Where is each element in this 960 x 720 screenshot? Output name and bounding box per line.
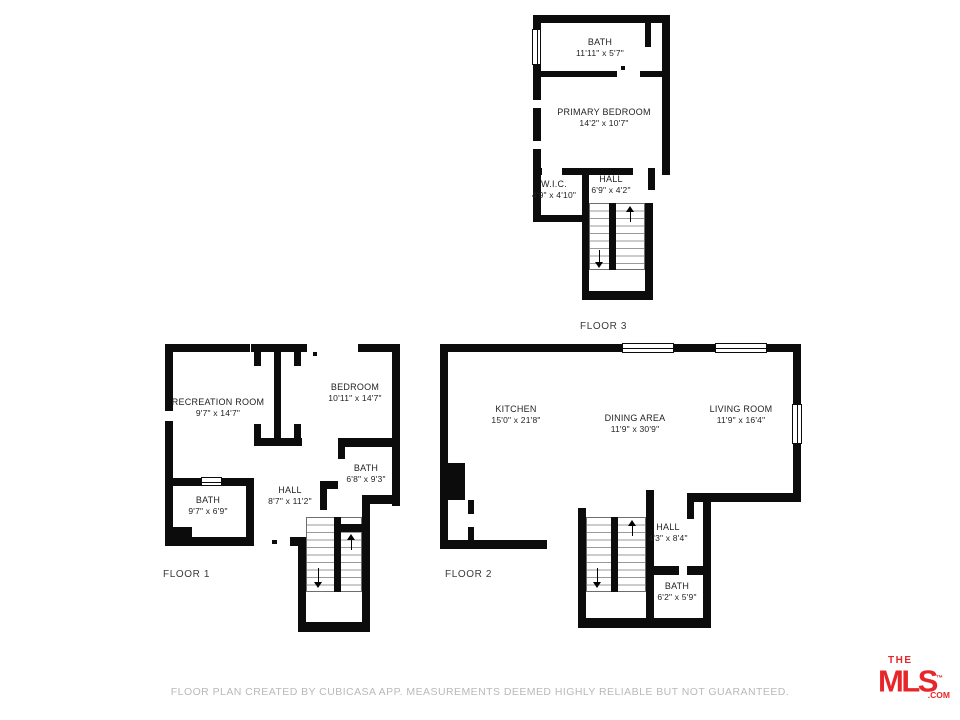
fireplace-block <box>166 527 192 541</box>
room-dims: 14'2" x 10'7" <box>534 118 674 128</box>
wall <box>468 500 474 514</box>
wall <box>533 15 670 23</box>
stairs-landing-wall <box>341 524 362 532</box>
room-name: W.I.C. <box>522 179 586 190</box>
room-name: LIVING ROOM <box>676 404 806 415</box>
wall <box>173 478 201 486</box>
disclaimer-text: FLOOR PLAN CREATED BY CUBICASA APP. MEAS… <box>0 686 960 698</box>
wall <box>298 537 306 632</box>
room-dims: 15'0" x 21'8" <box>451 415 581 425</box>
room-name: BEDROOM <box>300 382 410 393</box>
room-dims: 9'7" x 6'9" <box>163 506 253 516</box>
room-dims: 8'7" x 11'2" <box>245 496 335 506</box>
room-label-primary-bedroom: PRIMARY BEDROOM 14'2" x 10'7" <box>534 107 674 128</box>
stairs-down-arrow-icon <box>593 568 601 588</box>
stairs-down-arrow-icon <box>595 250 603 268</box>
room-dims: 4'9" x 4'10" <box>522 190 586 200</box>
wall <box>645 203 653 300</box>
wall <box>274 352 281 440</box>
room-label-bedroom: BEDROOM 10'11" x 14'7" <box>300 382 410 403</box>
wall <box>646 490 654 628</box>
room-label-wic: W.I.C. 4'9" x 4'10" <box>522 179 586 200</box>
wall <box>582 291 653 300</box>
room-dims: 11'9" x 16'4" <box>676 415 806 425</box>
room-name: KITCHEN <box>451 404 581 415</box>
door-tick <box>526 540 531 544</box>
wall <box>578 618 711 628</box>
room-label-living-room: LIVING ROOM 11'9" x 16'4" <box>676 404 806 425</box>
wall <box>294 352 301 366</box>
fireplace-block <box>448 463 465 500</box>
room-name: HALL <box>579 174 643 185</box>
themls-logo: THE MLS™ .COM <box>876 656 952 712</box>
floor-1-label: FLOOR 1 <box>163 569 210 580</box>
room-label-bath-upper-f1: BATH 6'8" x 9'3" <box>321 463 411 484</box>
window <box>201 477 222 486</box>
stairs-divider-wall <box>609 203 616 270</box>
wall <box>687 493 694 519</box>
wall <box>254 438 302 446</box>
room-label-hall-f1: HALL 8'7" x 11'2" <box>245 485 335 506</box>
wall <box>648 168 655 190</box>
stairs-up-arrow-icon <box>626 206 634 222</box>
window <box>715 343 767 353</box>
room-dims: 6'8" x 9'3" <box>321 474 411 484</box>
logo-tm-mark: ™ <box>936 675 943 682</box>
room-name: HALL <box>623 522 713 533</box>
room-label-hall-f3: HALL 6'9" x 4'2" <box>579 174 643 195</box>
floor-2-label: FLOOR 2 <box>445 569 492 580</box>
wall <box>338 447 345 459</box>
wall <box>251 344 307 352</box>
wall <box>468 527 474 541</box>
wall <box>362 495 400 504</box>
wall <box>254 352 261 366</box>
room-dims: 11'11" x 5'7" <box>540 48 660 58</box>
wall <box>362 495 370 632</box>
wall <box>578 508 586 628</box>
room-name: BATH <box>540 37 660 48</box>
room-dims: 11'9" x 30'9" <box>570 424 700 434</box>
room-dims: 6'9" x 4'2" <box>579 185 643 195</box>
wall <box>533 215 589 222</box>
wall <box>646 566 679 575</box>
stairs-divider-wall <box>611 517 618 592</box>
room-label-bath-f2: BATH 6'2" x 5'9" <box>632 581 722 602</box>
door-tick <box>621 66 625 70</box>
room-name: HALL <box>245 485 335 496</box>
window <box>622 343 674 353</box>
room-dims: 9'7" x 14'7" <box>148 408 288 418</box>
stairs-divider-wall <box>334 517 341 592</box>
room-name: BATH <box>321 463 411 474</box>
door-tick <box>313 352 317 356</box>
room-label-bath-lower-f1: BATH 9'7" x 6'9" <box>163 495 253 516</box>
wall <box>338 438 400 447</box>
wall <box>165 344 250 352</box>
wall <box>533 168 542 175</box>
room-label-bath-f3: BATH 11'11" x 5'7" <box>540 37 660 58</box>
room-dims: 6'2" x 5'9" <box>632 592 722 602</box>
room-label-kitchen: KITCHEN 15'0" x 21'8" <box>451 404 581 425</box>
wall <box>703 493 711 628</box>
stairs-up-arrow-icon <box>347 534 355 550</box>
wall <box>298 622 370 632</box>
room-label-recreation-room: RECREATION ROOM 9'7" x 14'7" <box>148 397 288 418</box>
room-dims: 4'3" x 8'4" <box>623 533 713 543</box>
stairs-down-arrow-icon <box>314 568 322 588</box>
room-label-hall-f2: HALL 4'3" x 8'4" <box>623 522 713 543</box>
room-dims: 10'11" x 14'7" <box>300 393 410 403</box>
room-name: PRIMARY BEDROOM <box>534 107 674 118</box>
door-tick <box>272 540 277 544</box>
room-name: BATH <box>632 581 722 592</box>
room-name: RECREATION ROOM <box>148 397 288 408</box>
wall-opening <box>533 141 541 149</box>
room-name: BATH <box>163 495 253 506</box>
wall <box>440 344 448 549</box>
floor-3-label: FLOOR 3 <box>580 321 627 332</box>
wall <box>541 71 617 77</box>
wall <box>640 71 662 77</box>
wall <box>662 15 670 175</box>
